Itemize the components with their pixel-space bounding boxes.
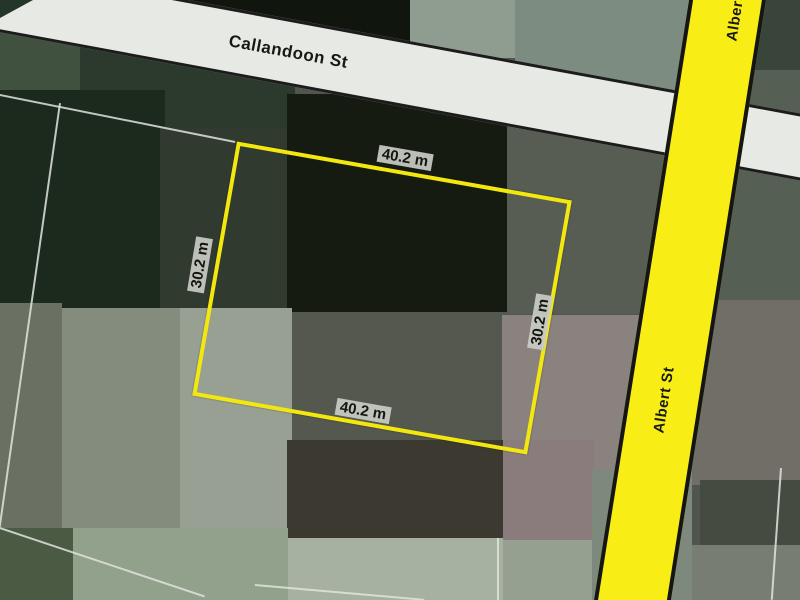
property-boundary-map: Callandoon St Albert St Albert St 40.2 m…	[0, 0, 800, 600]
land-parcel-block	[503, 540, 593, 600]
land-parcel-block	[287, 440, 503, 538]
land-parcel-block	[690, 545, 800, 600]
land-parcel-block	[0, 303, 62, 531]
land-parcel-block	[502, 440, 594, 542]
land-parcel-block	[60, 308, 182, 528]
street-label-callandoon: Callandoon St	[227, 31, 349, 73]
parcel-boundary-line	[497, 538, 499, 600]
land-parcel-block	[700, 480, 800, 546]
